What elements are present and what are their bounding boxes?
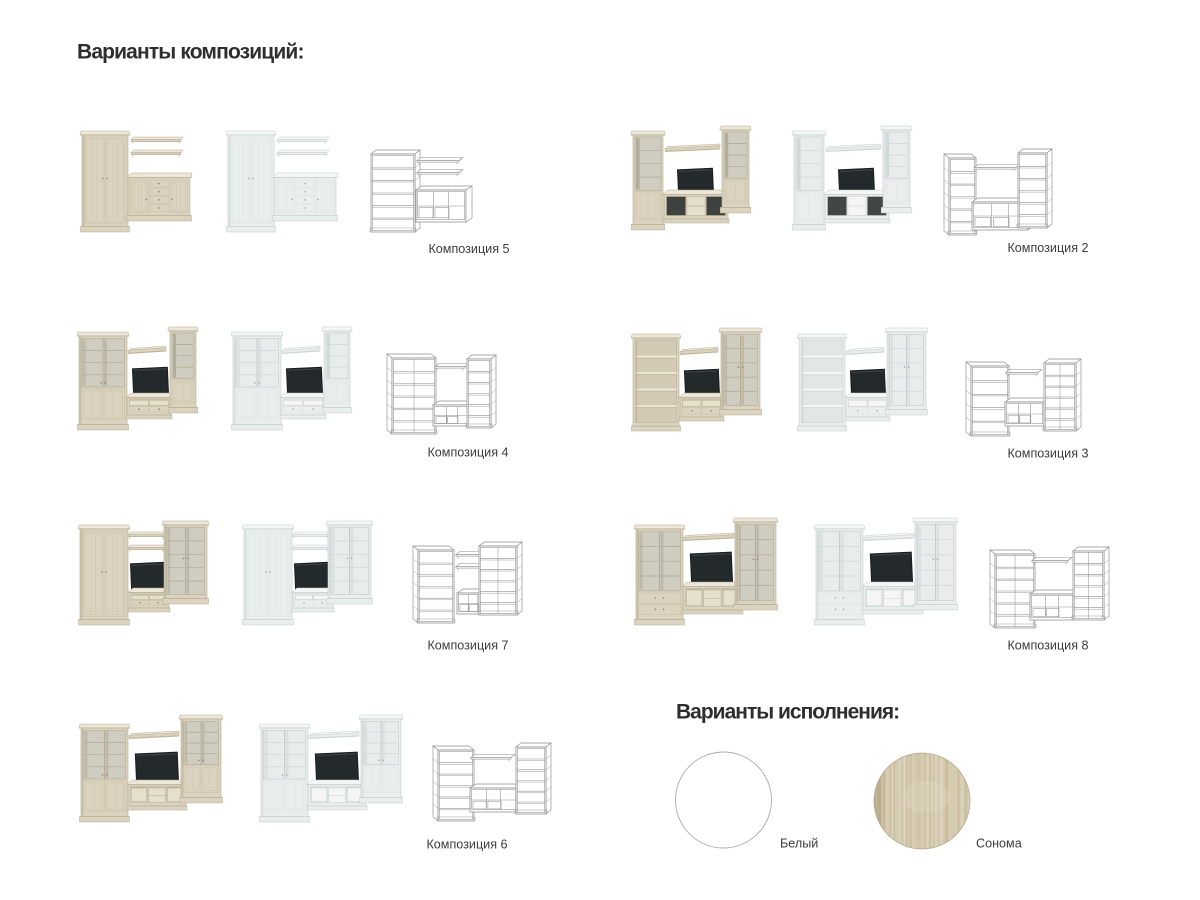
svg-text:Композиция 6: Композиция 6: [426, 838, 507, 852]
svg-text:Варианты композиций:: Варианты композиций:: [77, 41, 304, 64]
svg-text:Белый: Белый: [780, 837, 818, 851]
svg-text:Сонома: Сонома: [976, 837, 1022, 851]
svg-text:Композиция 2: Композиция 2: [1007, 241, 1088, 255]
svg-text:Композиция 3: Композиция 3: [1007, 447, 1088, 461]
svg-text:Композиция 7: Композиция 7: [427, 639, 508, 653]
svg-text:Композиция 8: Композиция 8: [1007, 639, 1088, 653]
svg-text:Варианты исполнения:: Варианты исполнения:: [676, 701, 899, 724]
svg-text:Композиция 5: Композиция 5: [428, 242, 509, 256]
svg-text:Композиция 4: Композиция 4: [427, 446, 508, 460]
